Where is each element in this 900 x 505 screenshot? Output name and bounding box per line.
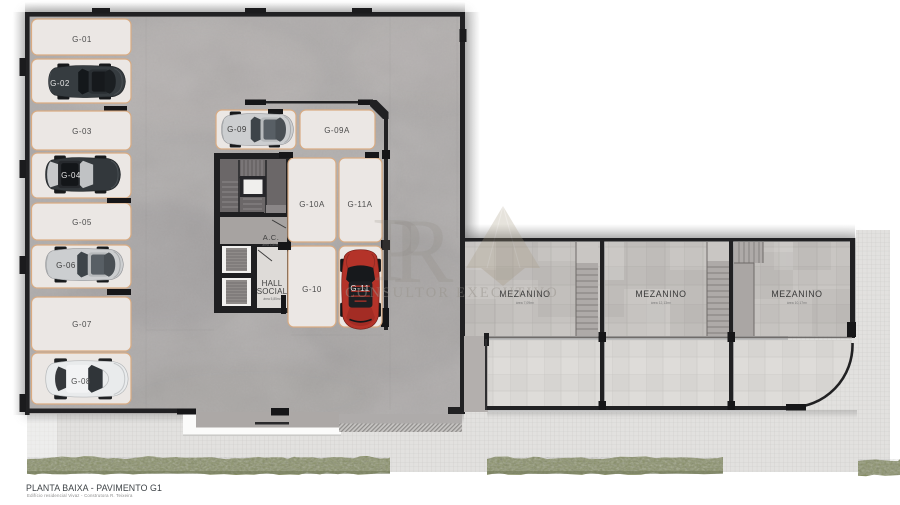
svg-text:área 12,13m²: área 12,13m² (651, 301, 672, 305)
svg-text:MEZANINO: MEZANINO (635, 289, 686, 299)
svg-text:PLANTA BAIXA - PAVIMENTO G1: PLANTA BAIXA - PAVIMENTO G1 (26, 483, 162, 493)
svg-text:área 7,09m²: área 7,09m² (516, 301, 535, 305)
svg-text:G-03: G-03 (72, 127, 92, 136)
svg-text:G-08: G-08 (71, 377, 91, 386)
svg-text:área 5,85m²: área 5,85m² (263, 297, 280, 301)
svg-text:Edifício residencial Vivaz -: Edifício residencial Vivaz - Construtora… (27, 493, 133, 498)
svg-text:A.C.: A.C. (263, 233, 280, 242)
svg-text:G-04: G-04 (61, 171, 81, 180)
svg-text:G-11A: G-11A (347, 200, 372, 209)
svg-text:G-09: G-09 (227, 125, 247, 134)
svg-text:G-09A: G-09A (324, 126, 350, 135)
svg-text:G-05: G-05 (72, 218, 92, 227)
svg-text:G-06: G-06 (56, 261, 76, 270)
svg-text:G-02: G-02 (50, 79, 70, 88)
svg-text:G-10A: G-10A (299, 200, 325, 209)
svg-text:área 3,80m²: área 3,80m² (262, 243, 279, 247)
svg-text:SOCIAL: SOCIAL (257, 287, 288, 296)
svg-text:MEZANINO: MEZANINO (771, 289, 822, 299)
svg-text:G-10: G-10 (302, 285, 322, 294)
svg-text:área 10,17m²: área 10,17m² (787, 301, 808, 305)
svg-text:CONSULTOR EXECUTIVO: CONSULTOR EXECUTIVO (345, 285, 559, 301)
svg-text:G-01: G-01 (72, 35, 92, 44)
svg-text:G-07: G-07 (72, 320, 92, 329)
